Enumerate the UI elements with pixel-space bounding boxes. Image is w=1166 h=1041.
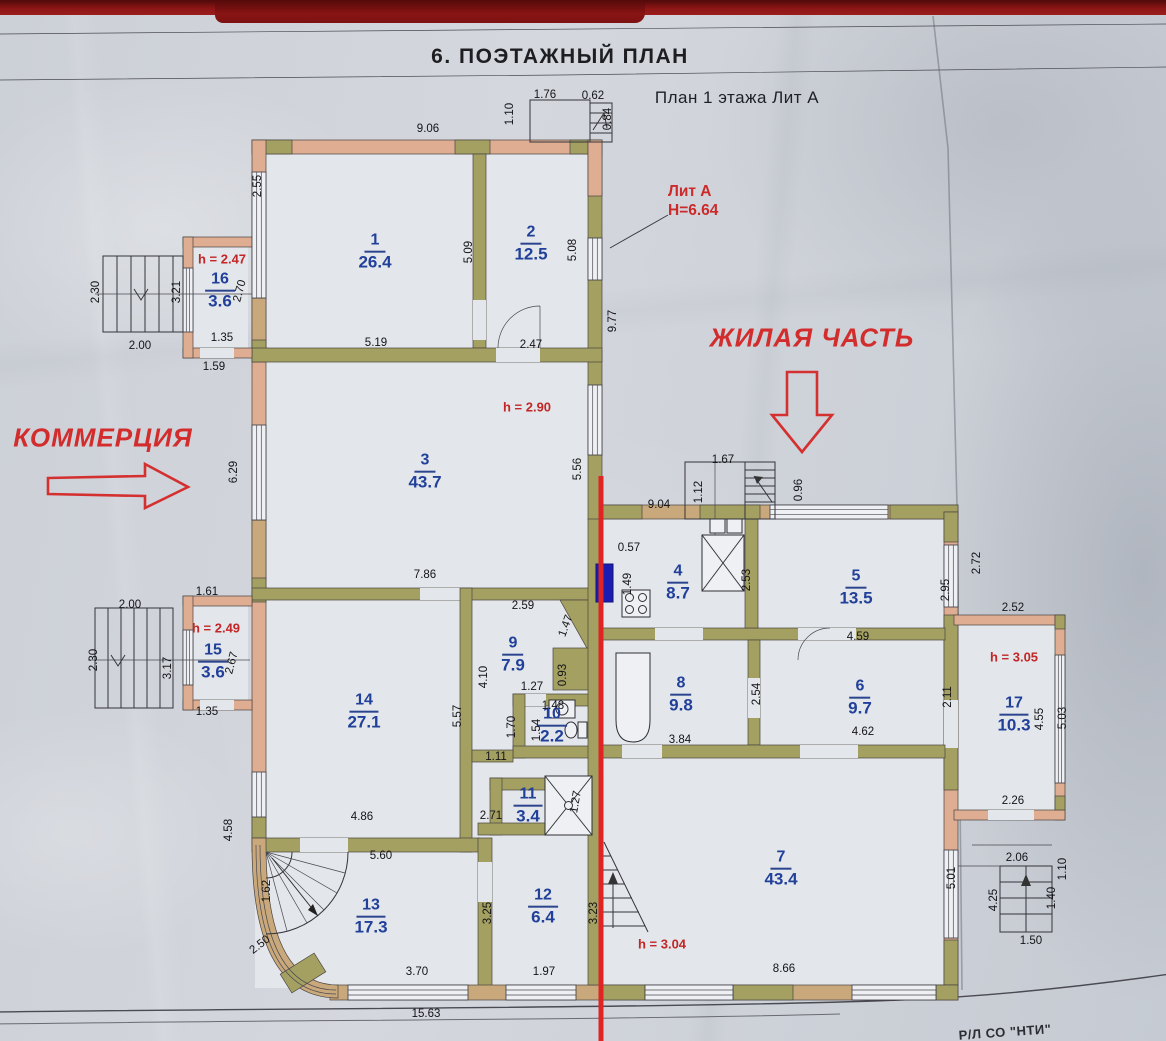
plan-subtitle: План 1 этажа Лит А [655, 88, 819, 108]
building-label: Лит А Н=6.64 [668, 183, 718, 220]
stairs-br-icon [958, 845, 1052, 932]
floor-plan [0, 0, 1166, 1041]
page-title: 6. ПОЭТАЖНЫЙ ПЛАН [431, 45, 689, 69]
stove-icon [622, 590, 650, 617]
commercial-arrow-icon [48, 464, 188, 508]
residential-zone-label: ЖИЛАЯ ЧАСТЬ [710, 323, 915, 354]
sink-icon [549, 700, 575, 718]
scanned-floor-plan-page: 6. ПОЭТАЖНЫЙ ПЛАН План 1 этажа Лит А Лит… [0, 0, 1166, 1041]
shower-icon [545, 776, 592, 835]
building-height: Н=6.64 [668, 202, 718, 219]
residential-arrow-icon [772, 372, 832, 452]
building-liter: Лит А [668, 183, 712, 200]
commercial-zone-label: КОММЕРЦИЯ [13, 423, 192, 454]
bathtub-icon [616, 653, 650, 742]
porch-2-icon [530, 100, 612, 142]
room-interiors [188, 150, 1058, 988]
building-label-leader [610, 215, 668, 248]
